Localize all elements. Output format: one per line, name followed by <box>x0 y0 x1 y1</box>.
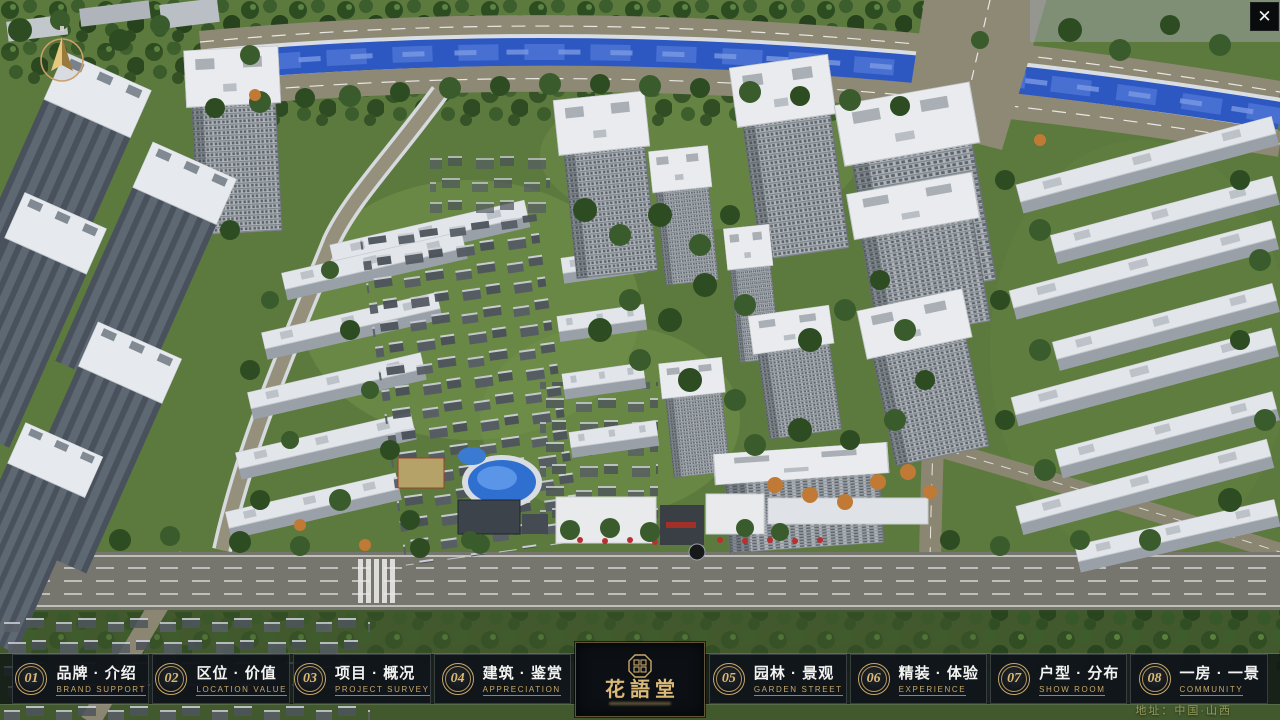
nav-number-badge: 05 <box>713 663 745 695</box>
project-logo-panel[interactable]: 花語堂 <box>575 642 705 717</box>
nav-title: 一房 · 一景 <box>1180 662 1260 683</box>
north-compass-icon <box>36 24 88 88</box>
nav-subtitle: COMMUNITY <box>1180 685 1244 696</box>
masterplan-render[interactable] <box>0 0 1280 720</box>
project-address: 地址：中国·山西 <box>1135 702 1232 718</box>
nav-subtitle: SHOW ROOM <box>1039 685 1105 696</box>
seal-icon <box>628 654 652 678</box>
nav-subtitle: GARDEN STREET <box>754 685 843 696</box>
nav-number-badge: 02 <box>155 663 187 695</box>
nav-number-badge: 03 <box>294 663 326 695</box>
nav-subtitle: EXPERIENCE <box>899 685 967 696</box>
project-logo-title: 花語堂 <box>600 680 680 700</box>
nav-number-badge: 01 <box>15 663 47 695</box>
nav-number-badge: 07 <box>998 663 1030 695</box>
nav-title: 建筑 · 鉴赏 <box>483 662 563 683</box>
nav-subtitle: LOCATION VALUE <box>196 685 287 696</box>
nav-item-project[interactable]: 03 项目 · 概况 PROJECT SURVEY <box>293 654 431 704</box>
nav-title: 区位 · 价值 <box>196 662 276 683</box>
nav-item-brand[interactable]: 01 品牌 · 介绍 BRAND SUPPORT <box>12 654 149 704</box>
nav-title: 园林 · 景观 <box>754 662 834 683</box>
nav-subtitle: BRAND SUPPORT <box>56 685 146 696</box>
nav-title: 项目 · 概况 <box>335 662 415 683</box>
nav-number-badge: 04 <box>442 663 474 695</box>
nav-item-floorplan[interactable]: 07 户型 · 分布 SHOW ROOM <box>990 654 1127 704</box>
nav-item-experience[interactable]: 06 精装 · 体验 EXPERIENCE <box>850 654 987 704</box>
nav-item-location[interactable]: 02 区位 · 价值 LOCATION VALUE <box>152 654 289 704</box>
nav-item-community[interactable]: 08 一房 · 一景 COMMUNITY <box>1130 654 1267 704</box>
presentation-window: ✕ 01 品牌 · 介绍 BRAND SUPPORT 02 区位 · 价值 LO… <box>0 0 1280 720</box>
nav-item-architecture[interactable]: 04 建筑 · 鉴赏 APPRECIATION <box>434 654 571 704</box>
nav-subtitle: PROJECT SURVEY <box>335 685 430 696</box>
logo-tagline <box>609 702 671 705</box>
nav-item-garden[interactable]: 05 园林 · 景观 GARDEN STREET <box>709 654 846 704</box>
nav-title: 户型 · 分布 <box>1039 662 1119 683</box>
nav-subtitle: APPRECIATION <box>483 685 561 696</box>
nav-title: 品牌 · 介绍 <box>56 662 136 683</box>
nav-number-badge: 08 <box>1139 663 1171 695</box>
close-button[interactable]: ✕ <box>1250 2 1279 31</box>
nav-title: 精装 · 体验 <box>899 662 979 683</box>
nav-number-badge: 06 <box>858 663 890 695</box>
